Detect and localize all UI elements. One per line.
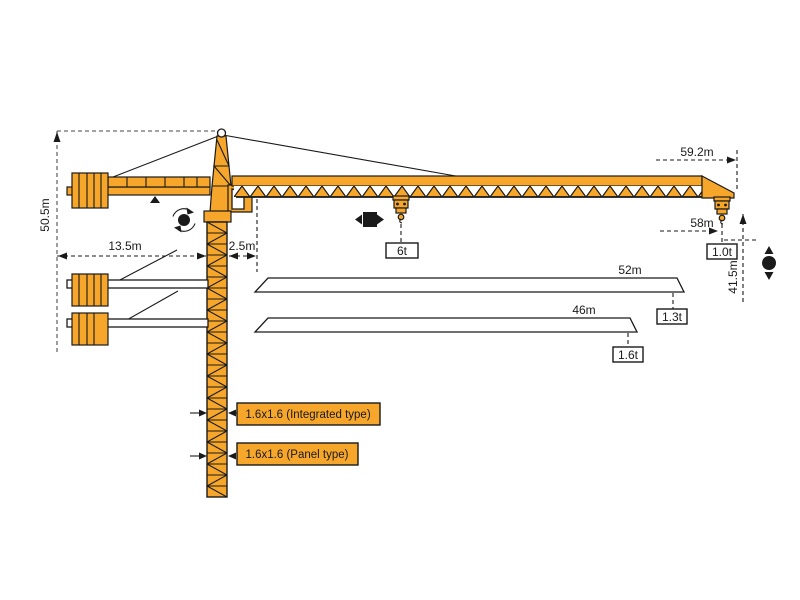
- counterweight-block: [72, 313, 108, 345]
- tip-load-label: 1.0t: [712, 245, 733, 259]
- lift-height-label: 41.5m: [726, 260, 740, 293]
- jib-lattice: [234, 186, 702, 197]
- hook-icon: [398, 214, 404, 220]
- tower-apex: [218, 129, 226, 137]
- slewing-icon: [173, 208, 195, 233]
- left-arrow-icon: [229, 253, 238, 260]
- right-arrow-icon: [247, 253, 256, 260]
- jib-root-offset-label: 2.5m: [229, 239, 256, 253]
- jib-option-46m: 46m 1.6t: [255, 303, 643, 362]
- trolley-mid: [393, 196, 409, 223]
- right-arrow-icon: [727, 157, 736, 164]
- left-arrow-icon: [228, 453, 236, 460]
- mast-type-label: 1.6x1.6 (Panel type): [246, 449, 349, 461]
- jib-tip: [702, 176, 734, 198]
- right-arrow-icon: [199, 410, 207, 417]
- counterweight-block: [72, 173, 108, 208]
- counter-jib-radius-label: 13.5m: [108, 239, 141, 253]
- mid-load-label: 6t: [397, 244, 408, 258]
- jib-length-label: 52m: [618, 263, 641, 277]
- trolley-travel-icon: [355, 212, 384, 227]
- hook-icon: [719, 215, 725, 221]
- leader-line: [118, 250, 177, 281]
- crane-load-diagram: 50.5m 13.5m 2.5m 59.2m 58m 41.5m: [0, 0, 800, 600]
- max-hook-radius-dimension: 58m: [660, 216, 718, 235]
- right-arrow-icon: [197, 253, 206, 260]
- tip-capacity-label: 1.3t: [662, 310, 683, 324]
- jib-length-label: 46m: [572, 303, 595, 317]
- counter-jib-radius-dimension: 13.5m: [57, 239, 206, 260]
- hoisting-icon: [762, 246, 776, 280]
- right-arrow-icon: [199, 453, 207, 460]
- counter-jib-tie-rod: [113, 135, 221, 177]
- mast-type-label: 1.6x1.6 (Integrated type): [245, 409, 370, 421]
- max-hook-radius-label: 58m: [690, 216, 713, 230]
- mid-load-callout: 6t: [386, 224, 418, 258]
- counter-jib-platform: [108, 177, 210, 187]
- jib-option-52m: 52m 1.3t: [255, 263, 687, 324]
- leader-line: [125, 291, 178, 321]
- jib-length-bar: [255, 278, 684, 292]
- jib-top-chord: [232, 176, 702, 186]
- up-arrow-icon: [740, 214, 747, 224]
- up-arrow-icon: [54, 132, 61, 142]
- counter-jib-pendant-icon: [150, 196, 160, 203]
- diagram-canvas: 50.5m 13.5m 2.5m 59.2m 58m 41.5m: [0, 0, 800, 600]
- counter-jib: [67, 173, 210, 208]
- left-arrow-icon: [228, 410, 236, 417]
- slewing-unit: [204, 211, 231, 222]
- jib-length-bar: [255, 318, 637, 332]
- trolley-tip: [714, 197, 730, 224]
- tower-mast: [207, 222, 227, 497]
- tip-capacity-label: 1.6t: [618, 348, 639, 362]
- jib: [232, 176, 734, 198]
- left-arrow-icon: [58, 253, 67, 260]
- counterweight-config-52m: [67, 250, 208, 306]
- overall-height-label: 50.5m: [38, 198, 52, 231]
- counterweight-block: [72, 274, 108, 306]
- jib-tie-rod: [223, 135, 467, 178]
- max-radius-label: 59.2m: [680, 145, 713, 159]
